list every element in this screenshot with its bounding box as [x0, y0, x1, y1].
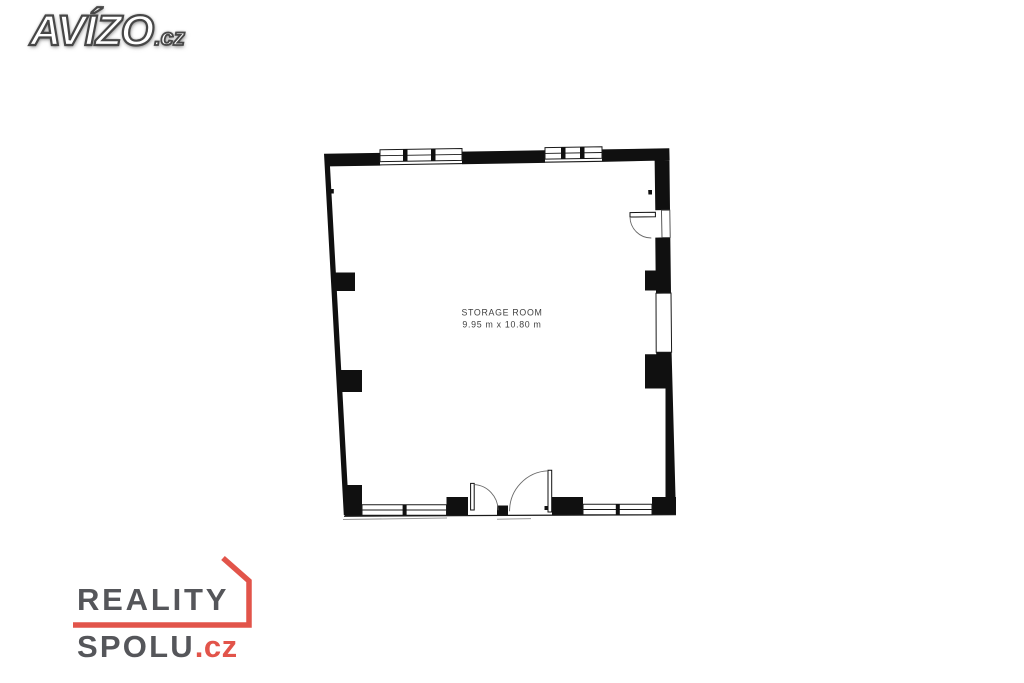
door-swing-arc-left — [474, 485, 498, 511]
door-swing-arc-right — [510, 471, 548, 512]
window-bottom-right — [583, 504, 652, 515]
window-right-wall — [656, 293, 672, 352]
window-mullion — [403, 505, 407, 515]
window-sill-lines — [343, 518, 531, 520]
walls — [324, 148, 676, 515]
room-dimensions: 9.95 m x 10.80 m — [462, 320, 541, 330]
door-bottom-double — [471, 470, 552, 512]
reality-spolu-line1: REALITY — [77, 584, 229, 615]
door-leaf-right — [548, 470, 552, 512]
door-frame — [662, 210, 671, 238]
door-swing-arc — [630, 217, 651, 238]
room-label: STORAGE ROOM — [461, 308, 542, 318]
window-mullion — [616, 504, 620, 515]
door-right-wall — [630, 210, 670, 238]
window-top-right — [545, 147, 602, 159]
reality-spolu-suffix: .cz — [195, 631, 238, 662]
wall-face-lines — [344, 161, 676, 516]
reality-spolu-logo: REALITY SPOLU.cz — [73, 555, 263, 675]
window-top-left — [380, 149, 462, 162]
reality-spolu-line2: SPOLU — [77, 631, 195, 662]
door-leaf-left — [471, 483, 475, 510]
door-leaf — [630, 212, 655, 217]
page: { "page": { "background_color": "#ffffff… — [0, 0, 1024, 683]
window-bottom-left — [362, 505, 447, 515]
